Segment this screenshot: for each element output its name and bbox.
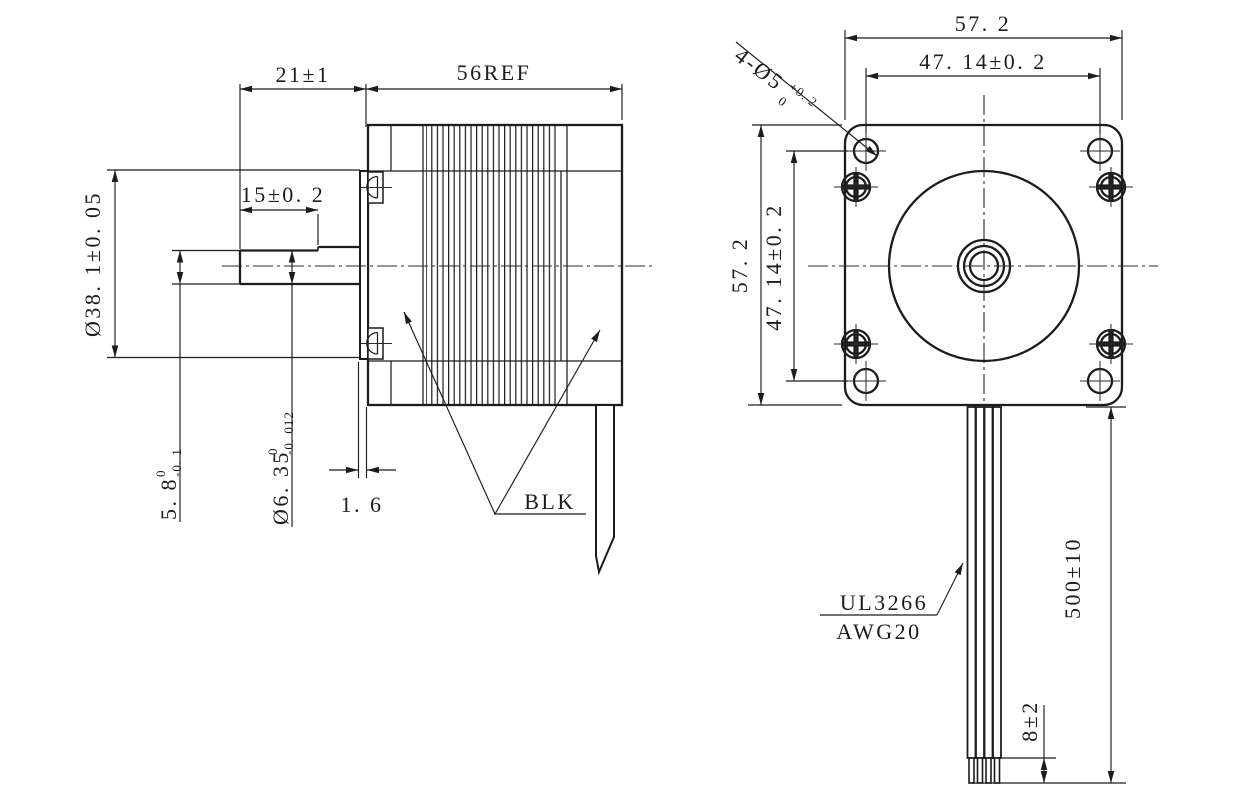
svg-text:4-Ø5: 4-Ø5 xyxy=(730,42,789,95)
svg-text:0: 0 xyxy=(775,93,790,109)
stripped-wire-tips xyxy=(969,758,1000,783)
dim-shaft-extension: 21±1 xyxy=(240,62,366,249)
svg-text:-0. 012: -0. 012 xyxy=(281,411,296,455)
dim-flat-height: 5. 8 0 -0. 1 xyxy=(153,251,240,523)
svg-text:0: 0 xyxy=(153,470,168,478)
front-view: 57. 2 47. 14±0. 2 57. 2 47. 14±0. 2 xyxy=(726,11,1158,783)
side-view: 21±1 56REF 15±0. 2 Ø38. 1±0. 05 xyxy=(80,60,655,572)
svg-text:-0. 1: -0. 1 xyxy=(169,448,184,477)
svg-text:+0. 2: +0. 2 xyxy=(786,79,820,110)
svg-text:5. 8: 5. 8 xyxy=(156,477,181,520)
svg-text:UL3266: UL3266 xyxy=(840,590,928,615)
svg-text:57. 2: 57. 2 xyxy=(727,237,752,294)
label-wire-spec: UL3266 AWG20 xyxy=(820,563,963,644)
svg-text:Ø6. 35: Ø6. 35 xyxy=(268,450,293,525)
svg-text:15±0. 2: 15±0. 2 xyxy=(241,182,326,207)
svg-text:AWG20: AWG20 xyxy=(836,619,921,644)
svg-text:57. 2: 57. 2 xyxy=(955,11,1012,36)
dim-flat-length: 15±0. 2 xyxy=(240,182,325,245)
dim-body-length: 56REF xyxy=(366,60,622,120)
technical-drawing-canvas: 21±1 56REF 15±0. 2 Ø38. 1±0. 05 xyxy=(0,0,1241,800)
svg-text:47. 14±0. 2: 47. 14±0. 2 xyxy=(761,203,786,331)
svg-text:BLK: BLK xyxy=(524,489,576,514)
svg-text:21±1: 21±1 xyxy=(275,62,330,87)
svg-text:1. 6: 1. 6 xyxy=(341,492,384,517)
dim-shaft-diameter: Ø6. 35 0 -0. 012 xyxy=(265,251,296,528)
svg-text:500±10: 500±10 xyxy=(1060,537,1085,619)
lead-wires xyxy=(968,407,1002,783)
svg-text:47. 14±0. 2: 47. 14±0. 2 xyxy=(919,49,1047,74)
svg-text:56REF: 56REF xyxy=(457,60,532,85)
svg-text:Ø38. 1±0. 05: Ø38. 1±0. 05 xyxy=(80,191,105,337)
lead-ribbon-side xyxy=(596,406,614,572)
dim-strip-length: 8±2 xyxy=(1002,700,1056,783)
svg-text:8±2: 8±2 xyxy=(1017,700,1042,742)
dim-hole-spacing-horizontal: 47. 14±0. 2 xyxy=(866,49,1100,133)
svg-text:0: 0 xyxy=(265,448,280,456)
pilot-boss xyxy=(360,171,368,359)
lamination-stack xyxy=(426,126,558,404)
